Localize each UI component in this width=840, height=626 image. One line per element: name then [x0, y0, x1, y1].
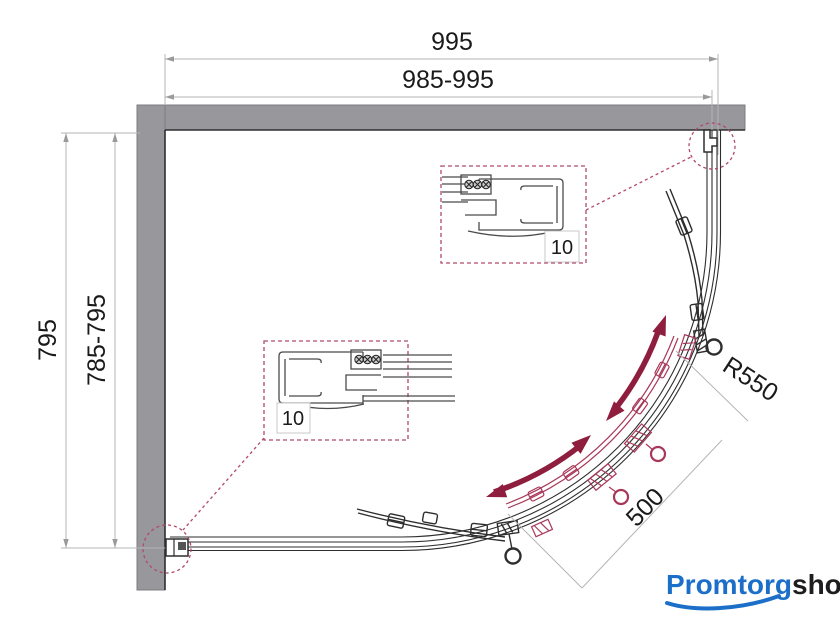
logo-text-dark: shop [792, 569, 840, 600]
dimension-label-left-inner: 785-795 [83, 294, 111, 386]
dimension-label-top-outer: 995 [431, 28, 473, 56]
dim-arrow-right-icon [709, 56, 718, 61]
wall-profile-top-right [704, 130, 717, 152]
door-edge-profile [588, 464, 616, 490]
sliding-door-bottom [357, 509, 521, 564]
adjustment-screws [465, 180, 490, 188]
door-roller [675, 216, 692, 235]
dim-arrow-bottom-icon [63, 539, 68, 548]
detail-label-top: 10 [551, 237, 573, 259]
wall-profile-bottom-left [166, 539, 188, 556]
top-wall [137, 105, 745, 130]
diagonal-dimension-500 [508, 440, 722, 588]
sliding-door-right [666, 189, 722, 355]
promtorg-logo: Promtorgshop [666, 569, 840, 608]
dim-arrow-right-icon [703, 94, 712, 99]
diagonal-label: 500 [621, 483, 670, 532]
dim-arrow-bottom-icon [112, 539, 117, 548]
dimension-label-top-inner: 985-995 [402, 66, 494, 94]
door-roller [422, 512, 438, 524]
technical-drawing-page: 995 985-995 795 785-795 [0, 0, 840, 626]
detail-callout-left: 10 [264, 341, 455, 440]
logo-text-blue: Promtorg [666, 569, 792, 600]
door-knob [614, 490, 628, 504]
left-wall [137, 105, 165, 590]
detail-callout-top: 10 [441, 166, 586, 263]
detail-label-left: 10 [282, 408, 304, 430]
dimension-785-795 [112, 133, 117, 548]
adjustment-screws [355, 355, 380, 363]
door-edge-profile [497, 521, 518, 536]
svg-text:Promtorgshop: Promtorgshop [666, 569, 840, 600]
drawing-canvas: 995 985-995 795 785-795 [0, 0, 840, 626]
door-knob [707, 340, 722, 355]
dim-arrow-left-icon [165, 94, 174, 99]
callout-leader-bottom [183, 438, 264, 530]
door-knob [506, 549, 521, 564]
dim-arrow-top-icon [63, 133, 68, 142]
door-knob [651, 447, 665, 461]
dim-arrow-left-icon [165, 56, 174, 61]
dim-arrow-top-icon [112, 133, 117, 142]
arrowhead-up-icon [652, 315, 666, 337]
radius-label: R550 [718, 351, 783, 407]
dimension-label-left-outer: 795 [34, 319, 62, 361]
door-edge-profile [625, 424, 652, 452]
dimension-795 [61, 133, 186, 548]
